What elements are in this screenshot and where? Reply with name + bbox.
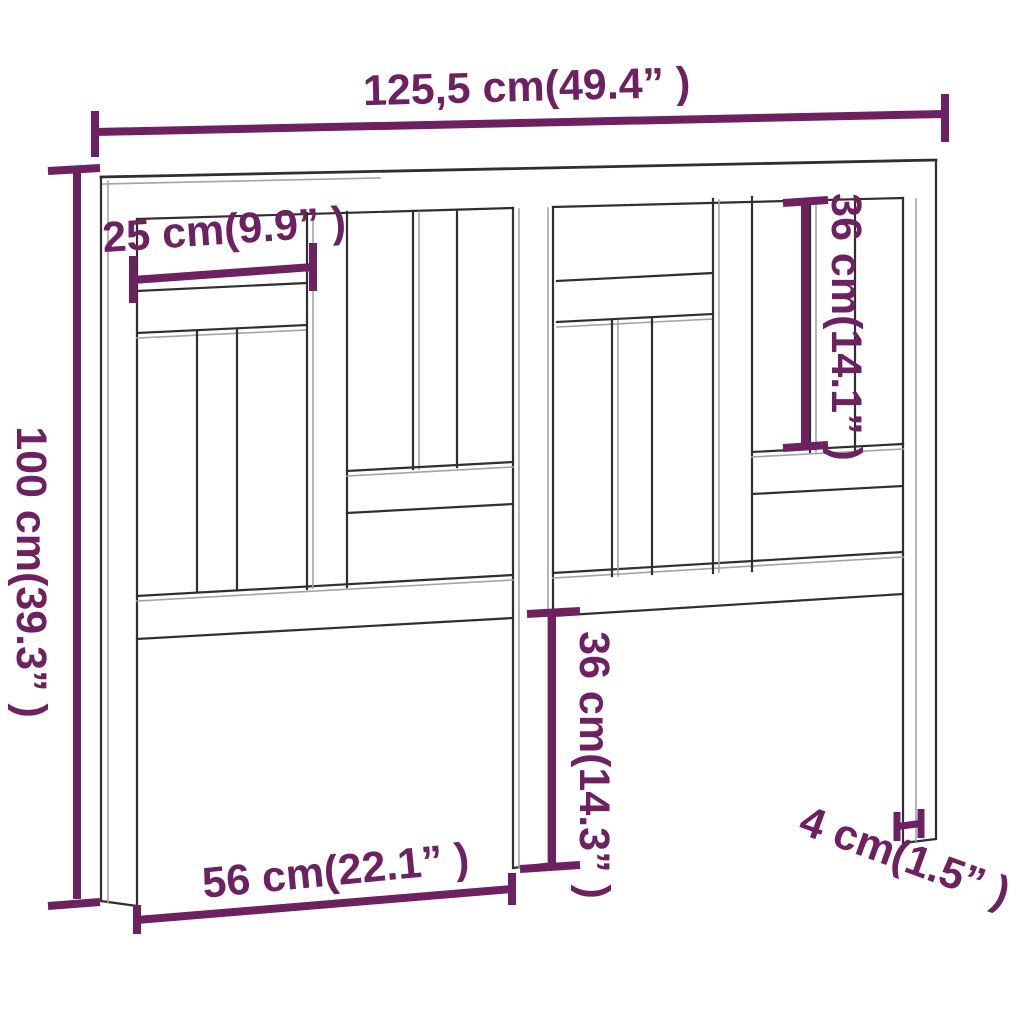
- dim-upper-slat-line: [783, 200, 828, 448]
- dim-overall-width: 125,5 cm(49.4” ): [95, 59, 945, 157]
- dim-leg-height: 36 cm(14.3” ): [520, 611, 618, 899]
- right-lower-slats: [612, 318, 652, 576]
- dim-overall-width-label: 125,5 cm(49.4” ): [362, 59, 691, 116]
- right-wide-slat: [713, 197, 752, 573]
- headboard-dimension-diagram: 125,5 cm(49.4” ) 100 cm(39.3” ) 25 cm(9.…: [0, 0, 1024, 1024]
- dim-overall-height-label: 100 cm(39.3” ): [7, 426, 55, 718]
- center-post: [513, 207, 553, 868]
- left-lower-slats: [197, 329, 237, 592]
- left-top-board: [137, 283, 307, 338]
- dimension-annotations: 125,5 cm(49.4” ) 100 cm(39.3” ) 25 cm(9.…: [7, 59, 1016, 934]
- right-top-board: [557, 273, 713, 327]
- left-upper-slats: [413, 210, 457, 469]
- right-leg: [903, 160, 936, 843]
- dim-upper-slat: 36 cm(14.1” ): [783, 193, 870, 461]
- dim-leg-width: 4 cm(1.5” ): [793, 797, 1016, 917]
- left-middle-board: [347, 462, 513, 513]
- bottom-rail: [137, 552, 903, 639]
- dim-leg-span: 56 cm(22.1” ): [137, 834, 512, 934]
- dim-leg-width-label: 4 cm(1.5” ): [793, 797, 1016, 917]
- dim-upper-slat-label: 36 cm(14.1” ): [822, 193, 870, 461]
- dim-overall-height: 100 cm(39.3” ): [7, 168, 100, 906]
- dim-leg-height-label: 36 cm(14.3” ): [570, 631, 618, 899]
- diagram-svg: 125,5 cm(49.4” ) 100 cm(39.3” ) 25 cm(9.…: [0, 0, 1024, 1024]
